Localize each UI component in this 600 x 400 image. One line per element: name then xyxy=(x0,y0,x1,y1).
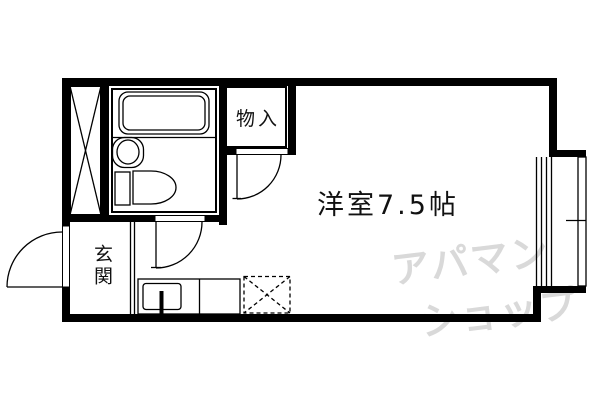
wall-window-step-top xyxy=(549,150,586,157)
window-bay xyxy=(537,157,587,286)
bathtub-outer xyxy=(119,92,209,134)
entry-door-opening xyxy=(63,226,70,287)
bathroom-door-swing-arc xyxy=(156,222,202,268)
bathroom-door xyxy=(151,216,205,269)
kitchen-faucet xyxy=(160,291,164,314)
storage-door-swing-arc xyxy=(237,155,281,199)
toilet-bowl xyxy=(133,171,176,204)
wall-storage-right xyxy=(288,86,296,155)
floorplan-canvas: アパマン ショップ xyxy=(0,0,600,400)
entrance-label: 玄関 xyxy=(91,244,113,288)
entry-door xyxy=(7,226,70,287)
wall-storage-bottom-stub xyxy=(219,148,236,155)
kitchen-counter xyxy=(138,279,240,314)
bathroom-unit-box xyxy=(112,89,216,212)
appliance-space xyxy=(244,277,290,314)
toilet-tank xyxy=(115,172,130,205)
bathroom xyxy=(112,89,216,212)
wall-bottom xyxy=(62,314,541,322)
bathtub-inner xyxy=(123,96,205,130)
wall-top xyxy=(62,78,557,86)
bathroom-door-opening xyxy=(155,216,205,222)
wall-bathroom-bottom-left xyxy=(62,215,155,222)
wall-shaft-right xyxy=(101,86,109,222)
kitchen xyxy=(138,279,240,314)
wall-right-upper xyxy=(549,78,557,157)
shaft xyxy=(70,86,101,215)
floorplan-drawing xyxy=(0,0,600,400)
window-outer-frame xyxy=(578,157,586,286)
storage-door-opening xyxy=(236,149,288,155)
wall-left-upper xyxy=(62,78,70,226)
wall-right-lower xyxy=(533,286,541,322)
entry-door-swing-arc xyxy=(7,232,62,287)
storage-label: 物入 xyxy=(236,104,280,131)
main-room-label: 洋室7.5帖 xyxy=(317,183,459,222)
washbasin-bowl xyxy=(117,140,139,164)
wall-bathroom-bottom-right xyxy=(205,215,227,222)
